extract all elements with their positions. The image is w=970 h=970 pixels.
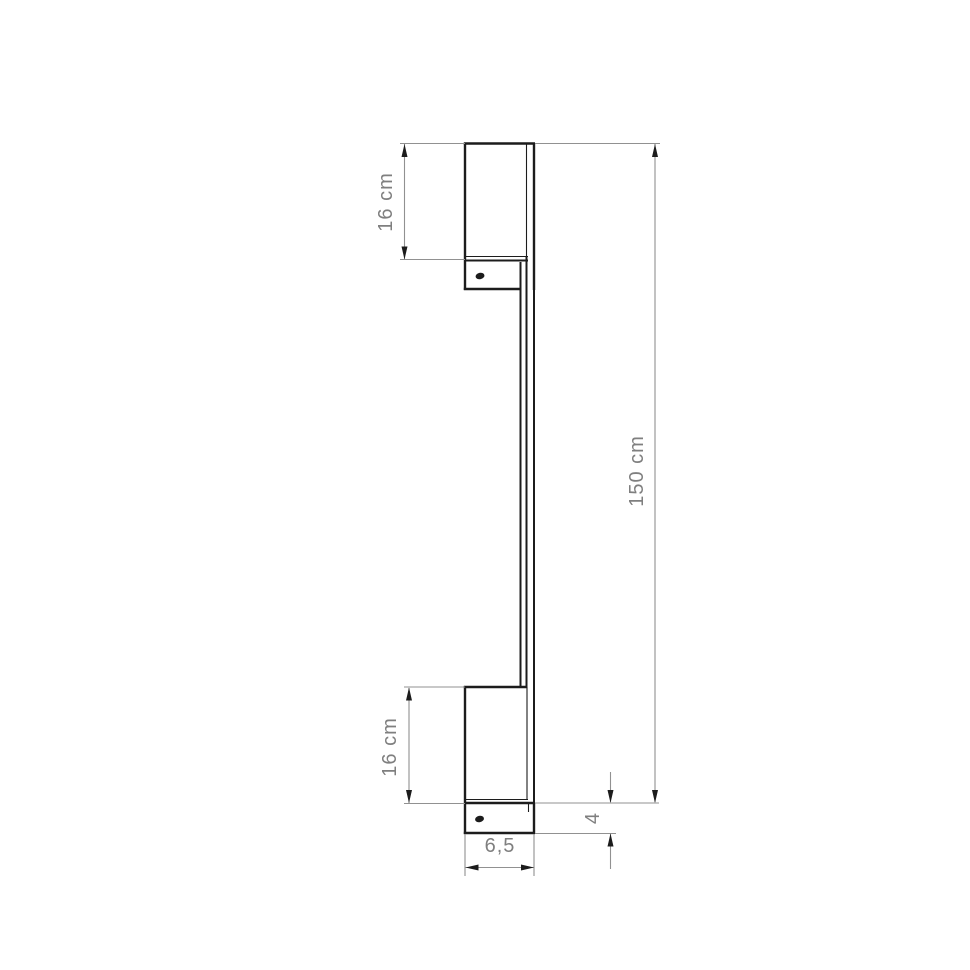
dim-base-depth: 4 bbox=[535, 772, 616, 869]
screw-hole-bottom bbox=[474, 815, 484, 823]
arrowhead-up bbox=[402, 144, 408, 157]
arrowhead-up bbox=[652, 144, 658, 157]
dim-total-height: 150 cm bbox=[535, 144, 660, 804]
dim-label-total-height: 150 cm bbox=[626, 435, 648, 507]
dim-label-bottom-bracket: 16 cm bbox=[379, 717, 401, 776]
dim-bottom-bracket-height: 16 cm bbox=[379, 687, 465, 804]
dim-top-bracket-height: 16 cm bbox=[375, 144, 465, 260]
arrowhead-down bbox=[608, 790, 614, 803]
arrowhead-down bbox=[406, 790, 412, 803]
arrowhead-down bbox=[402, 247, 408, 260]
arrowhead-down bbox=[652, 790, 658, 803]
dim-label-base-depth: 4 bbox=[582, 812, 604, 824]
arrowhead-up bbox=[406, 688, 412, 701]
technical-drawing: 16 cm 150 cm 16 cm 4 6,5 bbox=[0, 0, 970, 970]
top-bracket bbox=[464, 143, 535, 290]
drawing-canvas: 16 cm 150 cm 16 cm 4 6,5 bbox=[0, 0, 970, 970]
arrowhead-right bbox=[521, 865, 534, 871]
dim-base-width: 6,5 bbox=[465, 834, 534, 876]
dim-label-top-bracket: 16 cm bbox=[375, 172, 397, 231]
bottom-bracket bbox=[464, 686, 535, 834]
screw-hole-top bbox=[475, 272, 485, 280]
arrowhead-left bbox=[466, 865, 479, 871]
arrowhead-up bbox=[608, 834, 614, 847]
dim-label-base-width: 6,5 bbox=[485, 835, 516, 857]
